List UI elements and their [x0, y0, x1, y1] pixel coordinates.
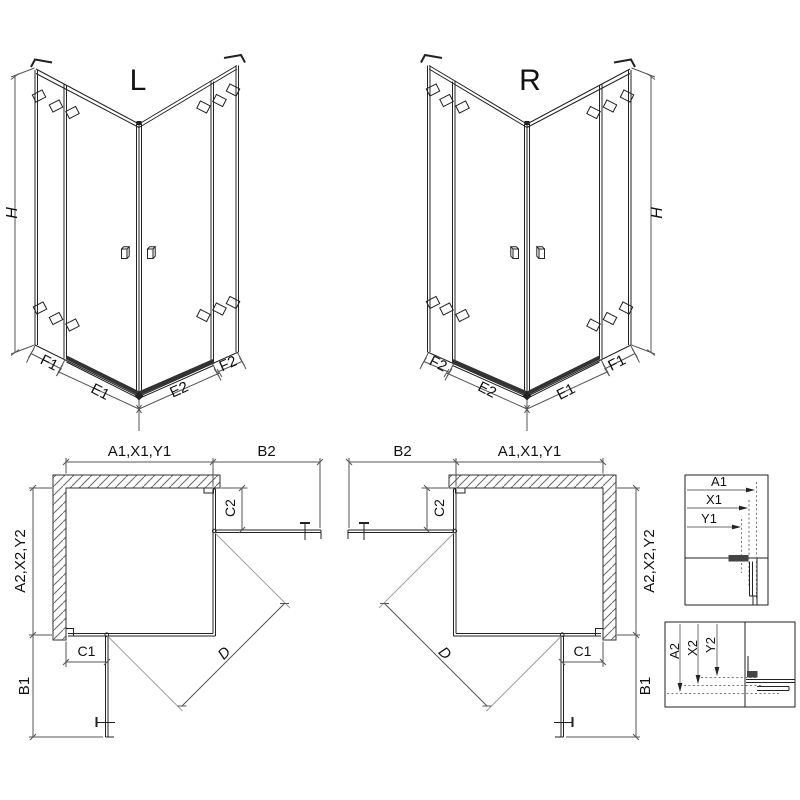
detail-y2-label: Y2 — [703, 637, 718, 653]
arrowhead-a1 — [746, 488, 755, 493]
shower-enclosure-dimension-sheet: L H F1 E1 E2 F2 R H F2 E2 E1 F1 A1,X1,Y1… — [0, 0, 800, 800]
detail-x1-label: X1 — [706, 492, 722, 507]
plan-view-left — [29, 458, 323, 740]
diagonal-label-plan-right: D — [435, 644, 455, 664]
panel-f2-label-right: F2 — [426, 352, 449, 375]
plan-left-walls — [53, 475, 220, 640]
panel-f1-label-right: F1 — [605, 351, 628, 374]
return-side-label-plan-left: B1 — [16, 677, 33, 695]
detail-y1-label: Y1 — [701, 511, 717, 526]
c2-label-plan-left: C2 — [222, 499, 238, 517]
front-view-right-variant — [420, 55, 655, 431]
technical-drawing-canvas: L H F1 E1 E2 F2 R H F2 E2 E1 F1 A1,X1,Y1… — [0, 0, 800, 800]
detail-box-depth — [665, 622, 795, 707]
detail-a1-label: A1 — [711, 474, 727, 489]
arrowhead-x2 — [696, 675, 701, 684]
c1-label-plan-left: C1 — [78, 643, 96, 659]
plan-view-right — [346, 458, 640, 740]
variant-label-left: L — [130, 64, 147, 97]
c2-label-plan-right: C2 — [431, 499, 447, 517]
variant-label-right: R — [519, 64, 541, 97]
diagonal-label-plan-left: D — [215, 643, 235, 663]
width-top-label-plan-right: A1,X1,Y1 — [498, 443, 561, 460]
depth-side-label-plan-left: A2,X2,Y2 — [12, 529, 29, 592]
width-top-label-plan-left: A1,X1,Y1 — [108, 443, 171, 460]
height-label-left: H — [4, 207, 21, 219]
return-top-label-plan-right: B2 — [393, 443, 411, 460]
detail-box-width — [685, 475, 768, 605]
arrowhead-x1 — [739, 506, 748, 511]
glass-clamp-section — [747, 671, 758, 678]
arrowhead-y2 — [715, 667, 720, 676]
door-e1-label-left: E1 — [88, 380, 112, 403]
depth-side-label-plan-right: A2,X2,Y2 — [641, 529, 658, 592]
return-top-label-plan-left: B2 — [257, 443, 275, 460]
c1-label-plan-right: C1 — [574, 643, 592, 659]
arrowhead-a2 — [678, 683, 683, 692]
arrowhead-y1 — [732, 525, 741, 530]
panel-f2-label-left: F2 — [217, 353, 240, 376]
glass-clamp-section — [729, 555, 749, 562]
detail-a2-label: A2 — [667, 643, 682, 659]
detail-x2-label: X2 — [685, 640, 700, 656]
panel-f1-label-left: F1 — [37, 351, 60, 374]
front-view-left-variant — [11, 55, 246, 431]
height-label-right: H — [649, 207, 666, 219]
plan-right-walls — [449, 475, 616, 640]
return-side-label-plan-right: B1 — [637, 677, 654, 695]
door-e1-label-right: E1 — [554, 380, 578, 403]
